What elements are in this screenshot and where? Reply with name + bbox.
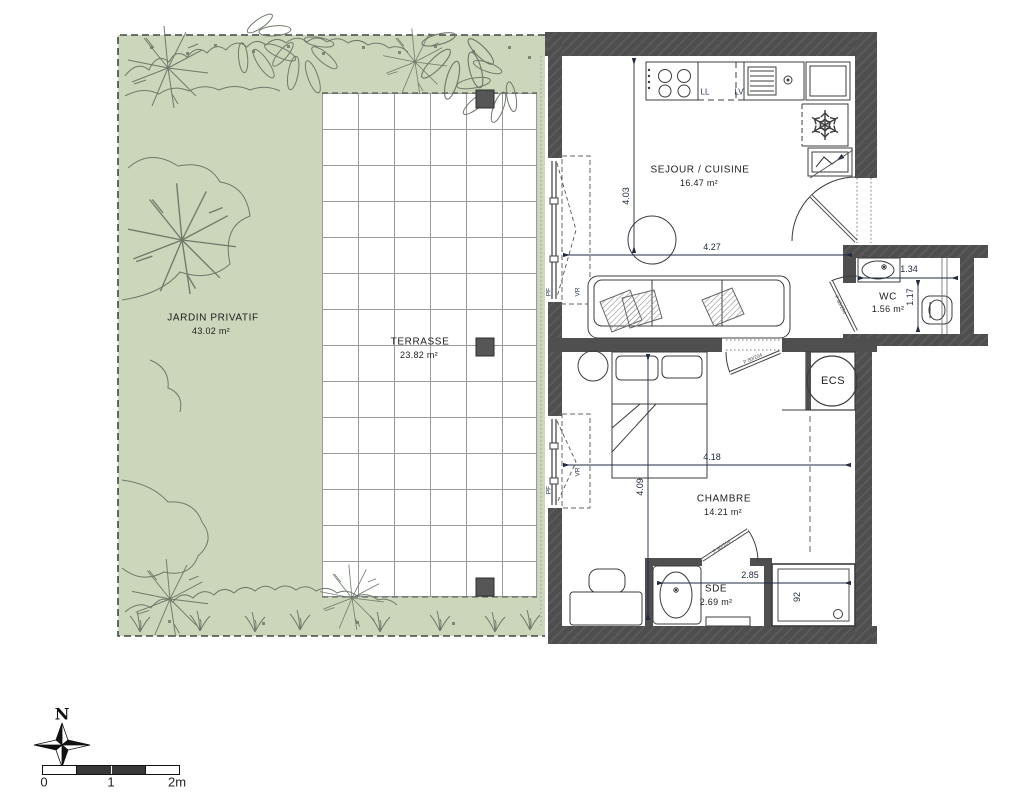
north-label: N	[55, 705, 70, 724]
window-label-pf-sejour: PF	[546, 288, 553, 296]
room-label-sejour: SEJOUR / CUISINE	[650, 165, 749, 176]
sofa	[588, 276, 790, 338]
dim-chambre-height: 4.09	[635, 478, 645, 496]
bedside-table	[578, 351, 608, 381]
chambre-window	[546, 414, 590, 508]
ecs-label: ECS	[821, 375, 845, 387]
desk-chair	[570, 569, 642, 625]
shutter-label-vr-chambre: VR	[575, 467, 582, 476]
dim-sde-width: 2.85	[741, 570, 759, 580]
scale-bar	[42, 765, 180, 775]
ecs-heater	[782, 352, 857, 552]
snowflake-icon	[810, 110, 840, 140]
round-table	[628, 216, 676, 264]
scale-tick-1: 1	[107, 775, 114, 790]
room-label-terrasse: TERRASSE	[391, 337, 450, 348]
room-area-sde: 2.69 m²	[700, 597, 733, 607]
terrace-pillars	[476, 90, 494, 596]
window-label-pf-chambre: PF	[546, 486, 553, 494]
north-compass-icon	[34, 723, 90, 767]
scale-seg	[145, 766, 179, 774]
washer-label: LL	[701, 88, 710, 97]
room-area-chambre: 14.21 m²	[704, 507, 742, 517]
plan-linework	[0, 0, 1027, 800]
room-label-jardin: JARDIN PRIVATIF	[167, 313, 258, 324]
room-label-wc: WC	[879, 292, 897, 303]
sde-bench	[706, 617, 750, 626]
wc-toilet	[922, 296, 952, 324]
floor-plan: N 0 1 2m JARDIN PRIVATIF 43.02 m² TERRAS…	[0, 0, 1027, 800]
room-area-terrasse: 23.82 m²	[400, 350, 438, 360]
dim-wc-width: 1.34	[900, 264, 918, 274]
bed	[612, 352, 707, 478]
fridge	[802, 104, 848, 146]
scale-tick-0: 0	[40, 775, 47, 790]
room-label-sde: SDE	[705, 584, 727, 595]
room-area-wc: 1.56 m²	[872, 304, 905, 314]
room-area-sejour: 16.47 m²	[680, 178, 718, 188]
dim-shower-width: 92	[792, 592, 802, 602]
room-area-jardin: 43.02 m²	[192, 326, 230, 336]
scale-seg	[43, 766, 76, 774]
sde-door	[702, 530, 758, 562]
dishwasher-label: LV	[734, 88, 743, 97]
scale-seg	[111, 766, 145, 774]
dim-sejour-width: 4.27	[703, 242, 721, 252]
dim-wc-height: 1.17	[905, 288, 915, 306]
garden-boundary	[118, 35, 545, 636]
room-label-chambre: CHAMBRE	[697, 494, 751, 505]
electrical-panel	[808, 148, 853, 178]
shutter-label-vr-sejour: VR	[575, 287, 582, 296]
sejour-window	[546, 156, 590, 304]
sde-basin	[653, 566, 701, 624]
scale-seg	[76, 766, 110, 774]
shower	[772, 564, 855, 626]
entrance-door	[792, 177, 871, 243]
kitchen-counter	[646, 62, 850, 100]
scale-tick-2: 2m	[168, 775, 186, 790]
dim-chambre-width: 4.18	[703, 452, 721, 462]
dim-sejour-height: 4.03	[621, 187, 631, 205]
